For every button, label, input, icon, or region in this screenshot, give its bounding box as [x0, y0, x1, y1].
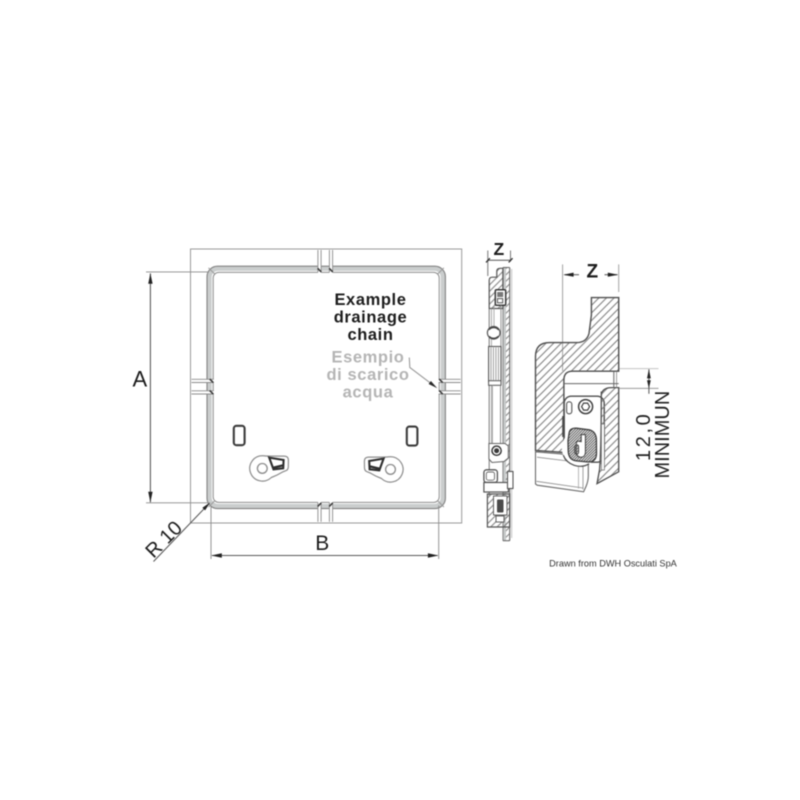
svg-text:A: A: [132, 366, 147, 391]
svg-text:MINIMUN: MINIMUN: [652, 391, 674, 479]
svg-text:Drawn from DWH Osculati SpA: Drawn from DWH Osculati SpA: [549, 559, 678, 569]
svg-text:Z: Z: [493, 239, 504, 259]
svg-text:di scarico: di scarico: [326, 366, 409, 384]
svg-text:B: B: [315, 532, 329, 555]
svg-text:drainage: drainage: [334, 309, 408, 327]
svg-text:Z: Z: [586, 262, 598, 283]
svg-text:Example: Example: [334, 291, 406, 309]
svg-text:Esempio: Esempio: [332, 349, 405, 367]
svg-text:chain: chain: [347, 326, 393, 344]
svg-text:acqua: acqua: [343, 384, 394, 402]
